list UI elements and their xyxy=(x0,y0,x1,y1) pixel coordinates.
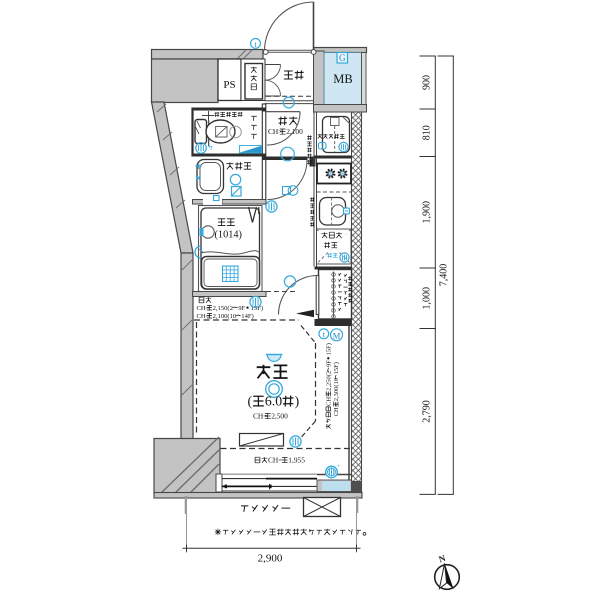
svg-text:1,000: 1,000 xyxy=(422,287,433,310)
svg-text:810: 810 xyxy=(422,125,433,140)
svg-text:G: G xyxy=(339,53,346,63)
svg-text:): ) xyxy=(295,394,300,410)
svg-text:M: M xyxy=(333,330,341,340)
svg-text:900: 900 xyxy=(422,75,433,90)
svg-text:9F: 9F xyxy=(238,305,245,312)
svg-text:7,400: 7,400 xyxy=(439,264,450,287)
svg-text:15F): 15F) xyxy=(325,343,332,355)
svg-text:2,790: 2,790 xyxy=(422,400,433,423)
svg-text:2,300(10: 2,300(10 xyxy=(333,378,340,401)
svg-text:(1014): (1014) xyxy=(215,229,242,240)
svg-text:2,100: 2,100 xyxy=(286,127,303,136)
svg-text:2,250(2: 2,250(2 xyxy=(325,371,332,391)
svg-text:9F: 9F xyxy=(325,360,332,367)
svg-text:2,500: 2,500 xyxy=(271,412,288,421)
svg-text:MB: MB xyxy=(333,72,352,86)
svg-text:2,150(2: 2,150(2 xyxy=(213,305,233,312)
svg-text:15F): 15F) xyxy=(333,362,340,374)
svg-text:(: ( xyxy=(248,394,253,410)
svg-text:2,100(10: 2,100(10 xyxy=(213,313,237,320)
svg-text:2,900: 2,900 xyxy=(258,553,283,565)
svg-text:CH=: CH= xyxy=(197,305,210,312)
svg-text:6.0: 6.0 xyxy=(265,394,282,409)
svg-text:CH=: CH= xyxy=(197,313,210,320)
svg-text:15F): 15F) xyxy=(251,305,263,312)
svg-text:PS: PS xyxy=(223,79,235,91)
svg-text:1,900: 1,900 xyxy=(422,201,433,224)
svg-text:CH=: CH= xyxy=(268,456,282,465)
svg-text:14F): 14F) xyxy=(241,313,253,320)
svg-text:1,955: 1,955 xyxy=(288,456,305,465)
